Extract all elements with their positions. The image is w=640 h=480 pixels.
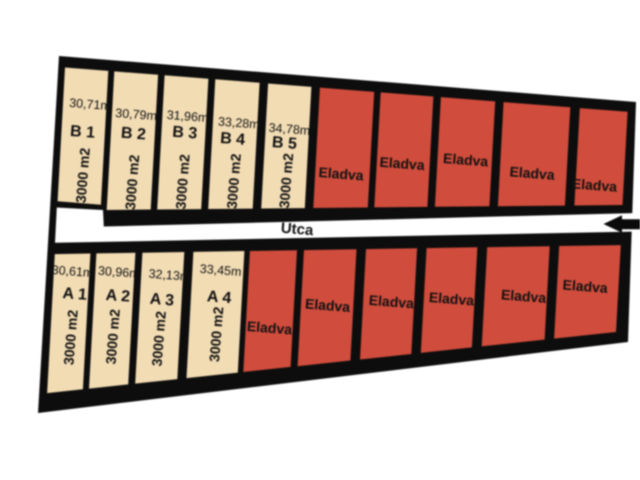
svg-text:A 1: A 1 — [62, 285, 88, 304]
svg-text:B 1: B 1 — [69, 123, 95, 142]
svg-text:A 3: A 3 — [149, 291, 175, 310]
svg-text:A 2: A 2 — [105, 287, 131, 306]
svg-text:B 5: B 5 — [271, 134, 297, 153]
svg-text:B 3: B 3 — [172, 124, 198, 143]
svg-text:Utca: Utca — [280, 220, 314, 240]
svg-text:A 4: A 4 — [206, 288, 232, 307]
svg-text:B 2: B 2 — [120, 125, 146, 144]
svg-text:B 4: B 4 — [220, 130, 246, 149]
